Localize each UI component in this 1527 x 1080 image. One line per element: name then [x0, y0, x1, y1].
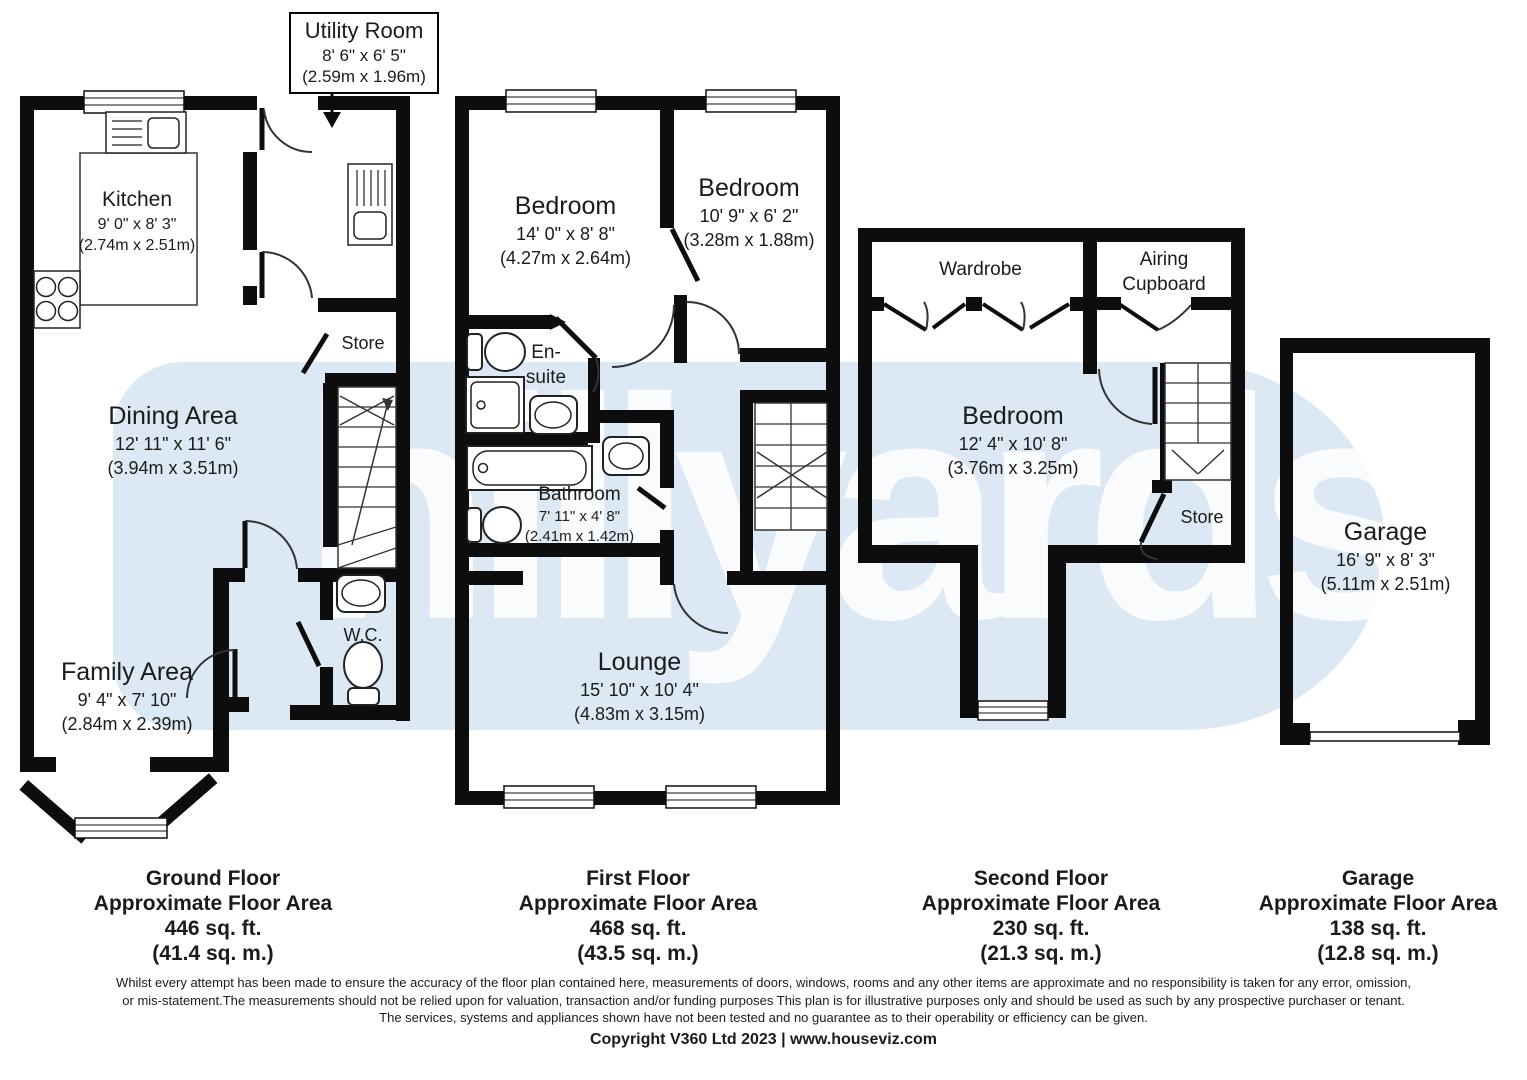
- wc-label: W.C.: [328, 624, 398, 648]
- dormer-window: [978, 701, 1048, 720]
- garage-summary: Garage Approximate Floor Area 138 sq. ft…: [1218, 866, 1527, 966]
- dining-area-label: Dining Area 12' 11" x 11' 6" (3.94m x 3.…: [58, 400, 288, 481]
- disclaimer-line-2: or mis-statement.The measurements should…: [0, 992, 1527, 1010]
- first-floor-stairs: [755, 403, 827, 530]
- bedroom2-label: Bedroom 10' 9" x 6' 2" (3.28m x 1.88m): [658, 172, 840, 253]
- floorplan-page: hillyards.: [0, 0, 1527, 1080]
- second-store-label: Store: [1172, 506, 1232, 530]
- garage-door: [1310, 732, 1460, 741]
- utility-room-callout: Utility Room 8' 6" x 6' 5" (2.59m x 1.96…: [289, 12, 439, 94]
- wc-toilet: [344, 642, 382, 705]
- airing-cupboard-label: Airing Cupboard: [1100, 247, 1228, 297]
- utility-appliance: [348, 164, 392, 245]
- copyright-line: Copyright V360 Ltd 2023 | www.houseviz.c…: [0, 1031, 1527, 1049]
- kitchen-label: Kitchen 9' 0" x 8' 3" (2.74m x 2.51m): [57, 186, 217, 256]
- first-floor-summary: First Floor Approximate Floor Area 468 s…: [478, 866, 798, 966]
- callout-imperial: 8' 6" x 6' 5": [291, 45, 437, 66]
- wc-sink: [337, 575, 385, 612]
- disclaimer-line-3: The services, systems and appliances sho…: [0, 1009, 1527, 1027]
- kitchen-window: [84, 91, 184, 113]
- ground-floor-stairs: [338, 387, 396, 568]
- second-floor-summary: Second Floor Approximate Floor Area 230 …: [881, 866, 1201, 966]
- ensuite-label: En- suite: [512, 340, 580, 390]
- bathroom-sink: [603, 437, 649, 475]
- ground-floor-summary: Ground Floor Approximate Floor Area 446 …: [53, 866, 373, 966]
- bay-window: [75, 818, 167, 838]
- wardrobe-label: Wardrobe: [898, 257, 1063, 282]
- kitchen-sink: [106, 112, 186, 153]
- callout-metric: (2.59m x 1.96m): [291, 66, 437, 87]
- garage-label: Garage 16' 9" x 8' 3" (5.11m x 2.51m): [1298, 516, 1473, 597]
- kitchen-hob: [34, 271, 80, 328]
- bathroom-label: Bathroom 7' 11" x 4' 8" (2.41m x 1.42m): [492, 482, 667, 547]
- family-area-label: Family Area 9' 4" x 7' 10" (2.84m x 2.39…: [22, 656, 232, 737]
- ensuite-sink: [530, 396, 577, 434]
- ground-store-label: Store: [328, 332, 398, 356]
- second-floor-stairs: [1165, 363, 1231, 480]
- lounge-label: Lounge 15' 10" x 10' 4" (4.83m x 3.15m): [542, 646, 737, 727]
- disclaimer-line-1: Whilst every attempt has been made to en…: [0, 974, 1527, 992]
- footer: Whilst every attempt has been made to en…: [0, 974, 1527, 1048]
- bedroom3-label: Bedroom 12' 4" x 10' 8" (3.76m x 3.25m): [918, 400, 1108, 481]
- callout-title: Utility Room: [291, 17, 437, 45]
- bedroom1-label: Bedroom 14' 0" x 8' 8" (4.27m x 2.64m): [468, 190, 663, 271]
